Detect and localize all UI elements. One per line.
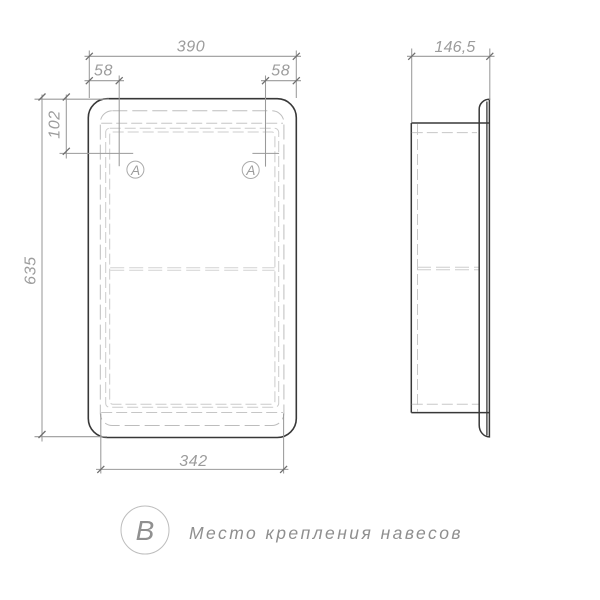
- svg-text:Место крепления навесов: Место крепления навесов: [189, 523, 463, 543]
- svg-text:102: 102: [47, 110, 64, 139]
- svg-text:58: 58: [271, 63, 290, 80]
- svg-text:146,5: 146,5: [434, 39, 475, 56]
- svg-text:635: 635: [22, 256, 39, 285]
- svg-text:A: A: [245, 163, 255, 178]
- svg-text:342: 342: [179, 453, 208, 470]
- svg-text:58: 58: [94, 63, 113, 80]
- svg-text:A: A: [130, 163, 140, 178]
- svg-text:390: 390: [177, 39, 206, 56]
- svg-text:В: В: [136, 515, 155, 546]
